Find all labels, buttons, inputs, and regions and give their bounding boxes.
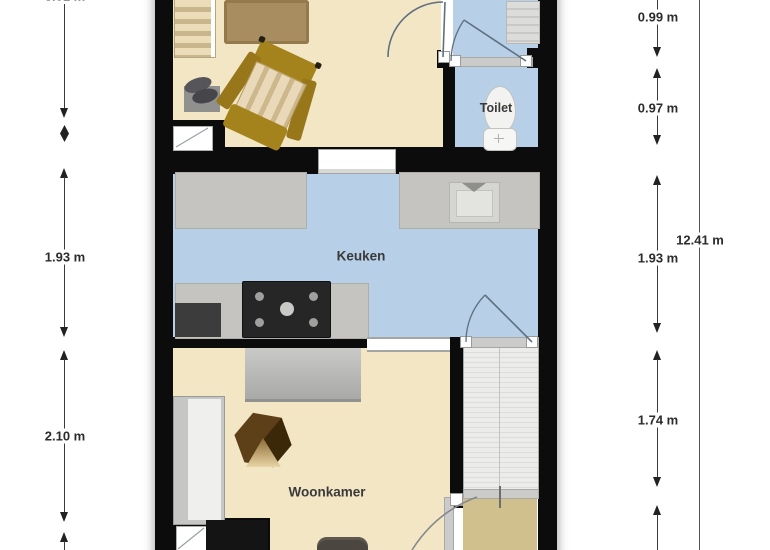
dishwasher [175, 303, 221, 337]
toilet-seat-mark [494, 138, 504, 139]
window-bedroom-left [173, 126, 213, 151]
dimension-label-total: 12.41 m [673, 233, 727, 248]
wardrobe-front [188, 399, 221, 520]
burner-icon [255, 292, 264, 301]
dimension-line [64, 541, 65, 550]
burner-icon [309, 292, 318, 301]
burner-icon [280, 302, 294, 316]
dimension-label-left-2: 1.93 m [42, 250, 88, 265]
room-label-toilet: Toilet [480, 101, 512, 115]
floorplan-canvas: Toilet Keuken Woonkamer 3.01 m 1.93 m 2.… [0, 0, 770, 550]
outer-wall-right [538, 0, 557, 550]
dimension-line [657, 514, 658, 550]
outer-wall-left [155, 0, 173, 550]
dimension-label-right-3: 1.93 m [635, 251, 681, 266]
toilet-seat [483, 128, 517, 151]
burner-icon [255, 318, 264, 327]
stove [242, 281, 331, 338]
door-hinge [460, 336, 472, 348]
door-hinge [449, 55, 461, 67]
kitchen-sink-basin [456, 190, 493, 217]
hatch-kitchen-living [367, 337, 450, 352]
room-label-kitchen: Keuken [337, 249, 386, 264]
radiator [506, 1, 540, 44]
wall-tick-icon [60, 125, 69, 142]
door-hinge [450, 493, 463, 506]
dimension-label-right-2: 0.97 m [635, 101, 681, 116]
door-opening-bedroom-hall [441, 0, 453, 56]
arrow-down-icon [653, 323, 661, 333]
stairs-bottom-threshold [463, 489, 539, 499]
arrow-down-icon [653, 135, 661, 145]
arrow-down-icon [60, 512, 68, 522]
tv-cabinet [206, 520, 268, 550]
arrow-down-icon [653, 47, 661, 57]
dimension-label-left-3: 2.10 m [42, 429, 88, 444]
rug [224, 0, 309, 44]
dimension-label-left-1: 3.01 m [42, 0, 88, 4]
wall-toilet-left [443, 58, 455, 147]
wardrobe [173, 396, 225, 525]
total-dimension-line [699, 0, 700, 550]
dimension-line [64, 4, 65, 110]
dimension-label-right-1: 0.99 m [635, 10, 681, 25]
window-livingroom-bottom [176, 526, 208, 550]
hatch-bedroom-kitchen [318, 149, 396, 174]
stairs-center-line [499, 348, 500, 488]
door-hinge [438, 51, 450, 63]
arrow-down-icon [60, 327, 68, 337]
stairs-newel-line [499, 486, 501, 508]
dimension-label-right-4: 1.74 m [635, 413, 681, 428]
sideboard [245, 348, 361, 402]
armchair [317, 537, 368, 550]
burner-icon [309, 318, 318, 327]
kitchen-counter-left [175, 172, 307, 229]
arrow-down-icon [653, 477, 661, 487]
room-label-livingroom: Woonkamer [288, 485, 365, 500]
shoe-mat [184, 86, 220, 112]
stairs [463, 347, 539, 491]
door-hinge [526, 336, 538, 348]
wall-livingroom-right [450, 337, 463, 508]
arrow-down-icon [60, 108, 68, 118]
shelf-rack [175, 0, 215, 57]
toilet-seat-mark [498, 134, 499, 143]
door-hinge [520, 55, 532, 67]
